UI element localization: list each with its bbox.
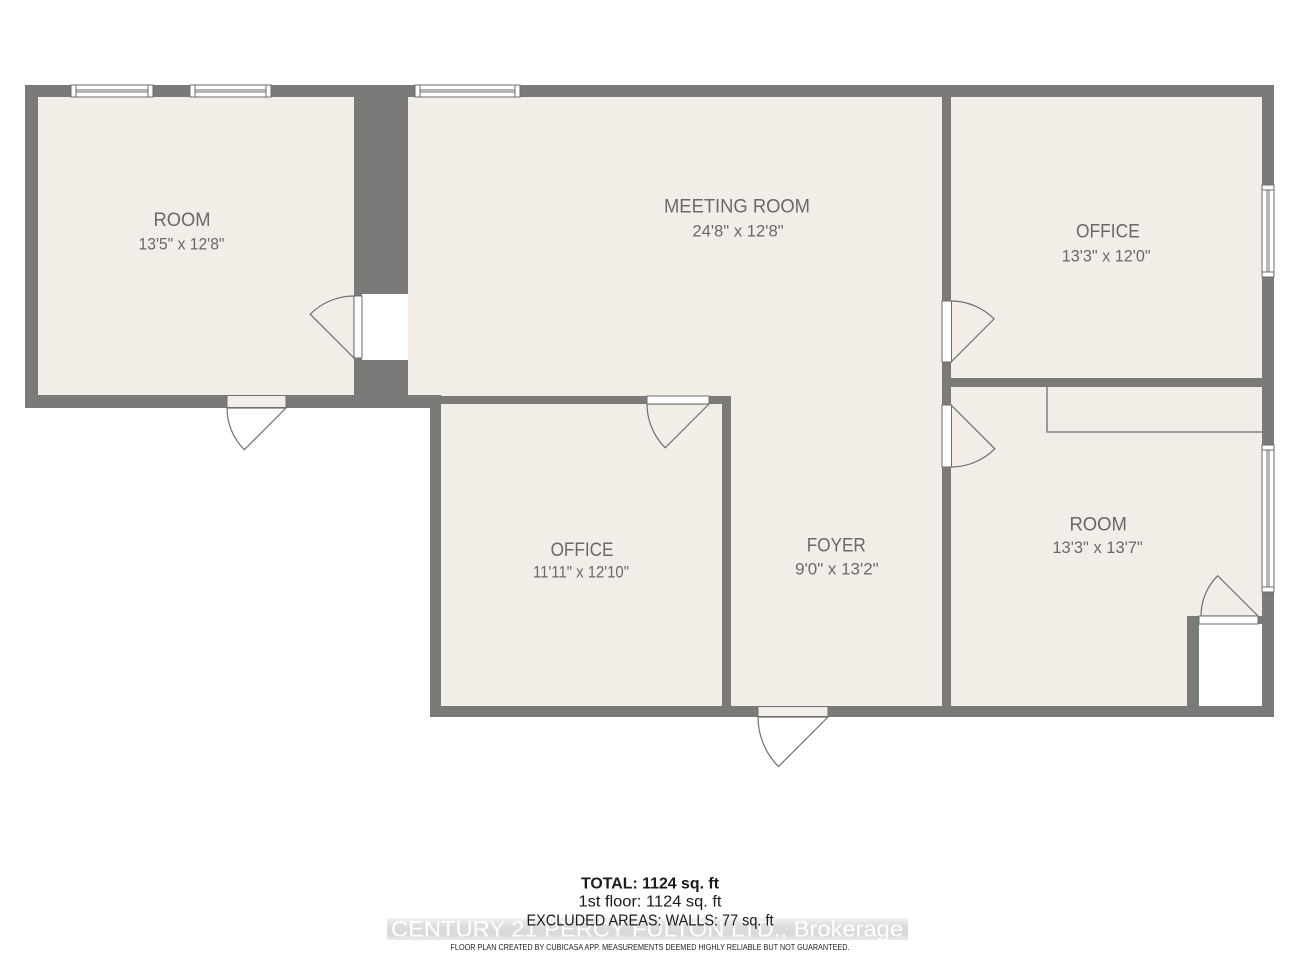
svg-text:13'3" x 12'0": 13'3" x 12'0"	[1062, 248, 1151, 266]
svg-text:1st floor: 1124 sq. ft: 1st floor: 1124 sq. ft	[579, 894, 723, 911]
svg-text:24'8" x 12'8": 24'8" x 12'8"	[692, 223, 783, 241]
svg-text:TOTAL: 1124 sq. ft: TOTAL: 1124 sq. ft	[581, 876, 720, 893]
svg-text:13'3" x 13'7": 13'3" x 13'7"	[1052, 539, 1143, 557]
svg-text:EXCLUDED AREAS: WALLS: 77 sq.: EXCLUDED AREAS: WALLS: 77 sq. ft	[527, 913, 774, 930]
svg-text:FOYER: FOYER	[807, 536, 866, 557]
svg-text:OFFICE: OFFICE	[1076, 221, 1140, 242]
svg-text:9'0" x 13'2": 9'0" x 13'2"	[795, 561, 879, 579]
svg-text:13'5" x 12'8": 13'5" x 12'8"	[139, 236, 225, 254]
svg-text:OFFICE: OFFICE	[551, 540, 614, 561]
svg-text:ROOM: ROOM	[154, 210, 211, 231]
svg-text:11'11" x 12'10": 11'11" x 12'10"	[533, 564, 629, 582]
svg-text:MEETING ROOM: MEETING ROOM	[664, 197, 810, 218]
svg-text:ROOM: ROOM	[1069, 514, 1127, 535]
svg-text:FLOOR PLAN CREATED BY CUBICASA: FLOOR PLAN CREATED BY CUBICASA APP. MEAS…	[451, 943, 850, 952]
